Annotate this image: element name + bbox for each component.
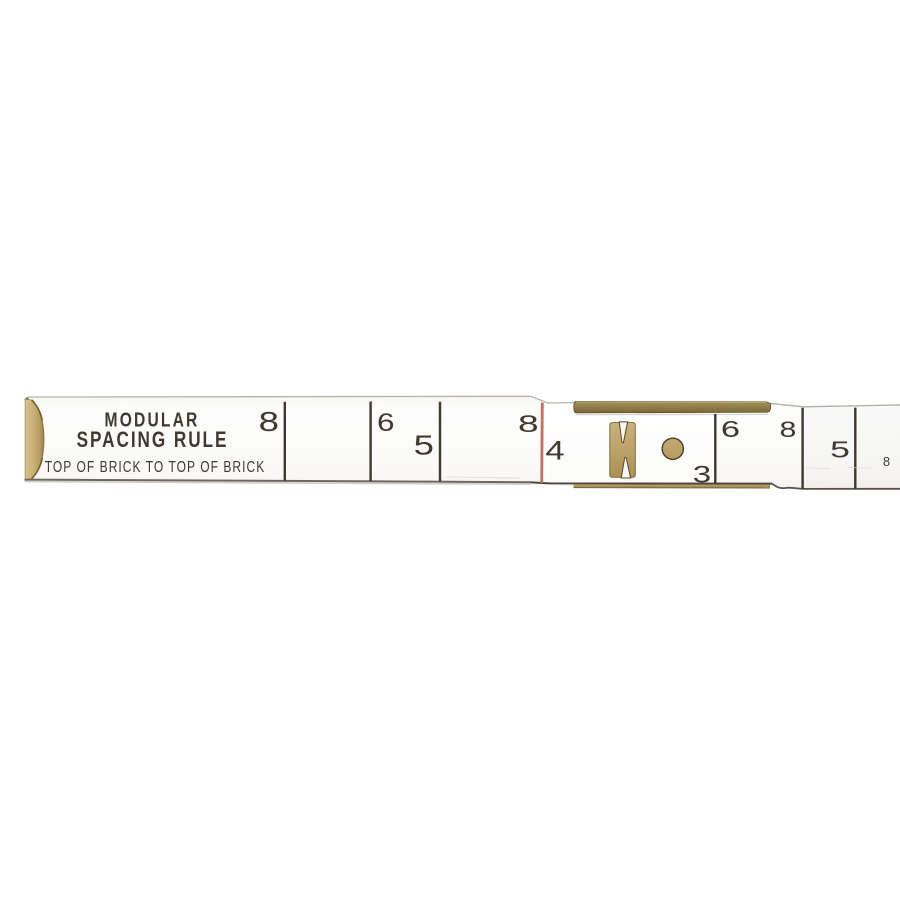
svg-text:5: 5 (414, 430, 434, 461)
svg-text:8: 8 (518, 411, 539, 438)
svg-text:6: 6 (721, 417, 740, 443)
svg-text:6: 6 (377, 409, 395, 437)
svg-text:3: 3 (693, 461, 711, 488)
svg-text:8: 8 (259, 406, 279, 437)
svg-text:SPACING RULE: SPACING RULE (77, 428, 229, 453)
svg-text:8: 8 (780, 417, 797, 442)
svg-text:4: 4 (545, 435, 564, 465)
svg-text:5: 5 (830, 438, 850, 463)
svg-text:TOP OF BRICK TO TOP OF BRICK: TOP OF BRICK TO TOP OF BRICK (45, 457, 266, 475)
svg-text:8: 8 (883, 455, 890, 469)
